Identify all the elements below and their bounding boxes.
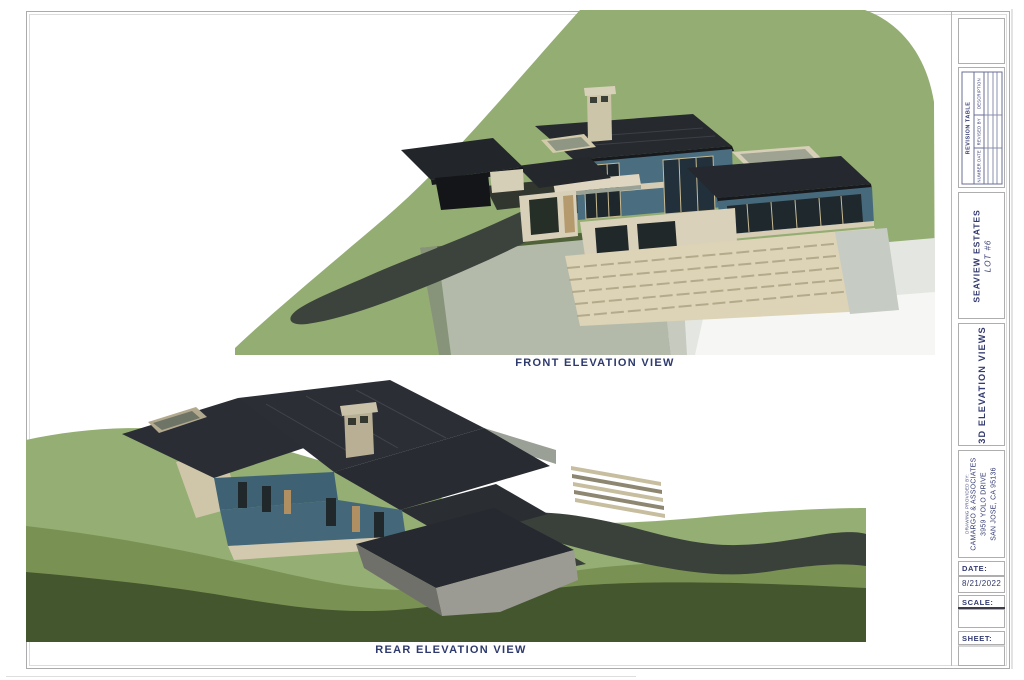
paper-edge-shadow-right	[1011, 9, 1013, 669]
provider-name: CAMARGO & ASSOCIATES	[969, 453, 979, 555]
paper-edge-shadow-bottom	[6, 676, 636, 677]
sheet-title-box: 3D ELEVATION VIEWS	[958, 323, 1005, 446]
title-block-logo-box	[958, 18, 1005, 64]
rear-elevation-rendering	[26, 366, 866, 642]
scale-label: SCALE:	[959, 596, 1004, 607]
revision-col-revised-by: REVISED BY	[974, 114, 983, 147]
sheet-label: SHEET:	[959, 632, 1004, 643]
scale-value-box	[958, 609, 1005, 628]
rear-view-caption: REAR ELEVATION VIEW	[311, 644, 591, 656]
revision-empty-rows	[984, 72, 1001, 183]
provider-box: DRAWING PROVIDED BY: CAMARGO & ASSOCIATE…	[958, 450, 1005, 558]
front-elevation-rendering	[235, 10, 935, 355]
sheet-label-box: SHEET:	[958, 631, 1005, 645]
revision-table-title: REVISION TABLE	[962, 72, 974, 183]
date-value-box: 8/21/2022	[958, 576, 1005, 593]
title-block-separator	[951, 12, 952, 666]
project-name: SEAVIEW ESTATES	[971, 196, 981, 316]
retaining-slats	[571, 466, 665, 518]
drawing-sheet: FRONT ELEVATION VIEW	[0, 0, 1024, 680]
revision-col-number-date: NUMBER DATE	[974, 147, 983, 183]
window	[595, 225, 629, 255]
project-lot: LOT #6	[983, 196, 992, 316]
provider-address2: SAN JOSE, CA 95136	[989, 453, 999, 555]
sheet-value	[959, 647, 1004, 649]
garage-opening	[435, 173, 491, 210]
sheet-value-box	[958, 645, 1005, 666]
window	[529, 197, 559, 235]
scale-value	[959, 610, 1004, 612]
sheet-title: 3D ELEVATION VIEWS	[977, 326, 987, 443]
date-label-box: DATE:	[958, 561, 1005, 576]
date-value: 8/21/2022	[959, 577, 1004, 588]
revision-table: REVISION TABLE NUMBER DATE REVISED BY DE…	[958, 67, 1005, 188]
date-label: DATE:	[959, 562, 1004, 573]
provider-address1: 3959 YOLO DRIVE	[979, 453, 989, 555]
provider-prefix: DRAWING PROVIDED BY:	[964, 453, 969, 555]
project-name-box: SEAVIEW ESTATES LOT #6	[958, 192, 1005, 319]
revision-col-description: DESCRIPTION	[974, 72, 983, 114]
